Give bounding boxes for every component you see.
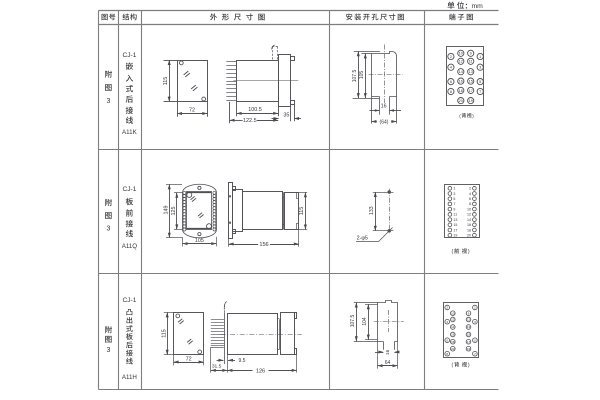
- svg-text:12: 12: [467, 213, 471, 217]
- svg-text:16: 16: [467, 223, 471, 227]
- svg-text:149: 149: [163, 206, 169, 215]
- svg-text:122.5: 122.5: [243, 118, 257, 124]
- svg-text:9: 9: [453, 207, 455, 211]
- svg-text:6: 6: [450, 80, 452, 84]
- svg-text:105: 105: [359, 71, 365, 80]
- svg-text:16: 16: [451, 333, 455, 337]
- svg-text:9: 9: [470, 52, 472, 56]
- svg-text:115: 115: [161, 329, 167, 338]
- svg-text:16: 16: [459, 79, 463, 83]
- svg-text:8: 8: [469, 202, 471, 206]
- svg-text:): ): [468, 362, 470, 368]
- svg-text:19: 19: [469, 99, 473, 103]
- svg-text:72: 72: [186, 356, 192, 362]
- svg-text:10: 10: [459, 52, 463, 56]
- svg-text:A11Q: A11Q: [122, 243, 138, 250]
- svg-text:8: 8: [450, 90, 452, 94]
- svg-text:6: 6: [469, 197, 471, 201]
- svg-text:31.5: 31.5: [212, 364, 222, 370]
- svg-text:5: 5: [474, 338, 476, 342]
- svg-text:11: 11: [469, 60, 473, 64]
- svg-text:11: 11: [467, 318, 470, 322]
- svg-text:): ): [468, 249, 470, 255]
- svg-text:CJ-1: CJ-1: [122, 52, 136, 59]
- svg-text:18: 18: [451, 340, 455, 344]
- svg-text:35: 35: [283, 112, 289, 118]
- svg-text:3: 3: [479, 66, 481, 70]
- svg-text:11: 11: [453, 213, 457, 217]
- svg-text:A11K: A11K: [122, 129, 138, 136]
- svg-text:3: 3: [106, 98, 110, 105]
- svg-text:7: 7: [453, 202, 455, 206]
- svg-text:12: 12: [451, 318, 455, 322]
- svg-text:15: 15: [453, 223, 457, 227]
- svg-text:8: 8: [446, 352, 448, 356]
- svg-text:17: 17: [453, 228, 457, 232]
- svg-text:A11H: A11H: [122, 374, 137, 381]
- svg-text:3: 3: [453, 192, 455, 196]
- svg-text:1: 1: [453, 187, 455, 191]
- svg-text:4: 4: [450, 66, 452, 70]
- svg-text:13: 13: [469, 70, 473, 74]
- svg-text:10: 10: [467, 207, 471, 211]
- svg-text:9: 9: [468, 311, 470, 315]
- svg-text:(: (: [452, 362, 454, 368]
- svg-text:13: 13: [467, 325, 471, 329]
- svg-text:CJ-1: CJ-1: [122, 297, 136, 304]
- svg-text:7: 7: [474, 352, 476, 356]
- svg-text:6: 6: [446, 338, 448, 342]
- svg-text:(: (: [459, 113, 461, 119]
- svg-text:14: 14: [459, 70, 463, 74]
- svg-text:15: 15: [467, 333, 471, 337]
- svg-text:17: 17: [469, 89, 473, 93]
- svg-text:2: 2: [450, 55, 452, 59]
- svg-text:(64): (64): [380, 119, 389, 125]
- svg-text:126: 126: [256, 368, 265, 374]
- svg-text:20: 20: [459, 99, 463, 103]
- svg-text:19: 19: [467, 347, 471, 351]
- svg-text:107.5: 107.5: [352, 70, 358, 83]
- svg-text:16: 16: [381, 104, 387, 110]
- svg-text:20: 20: [467, 233, 471, 237]
- svg-text:3: 3: [474, 320, 476, 324]
- svg-text:19: 19: [453, 233, 457, 237]
- svg-text:CJ-1: CJ-1: [122, 186, 136, 193]
- svg-text:14: 14: [467, 218, 471, 222]
- svg-text:18: 18: [459, 89, 463, 93]
- svg-text:115: 115: [299, 207, 305, 216]
- svg-text:5: 5: [479, 80, 481, 84]
- svg-text:3: 3: [106, 347, 110, 354]
- svg-text:5: 5: [453, 197, 455, 201]
- svg-text:9.5: 9.5: [239, 358, 246, 364]
- svg-text:1: 1: [479, 55, 481, 59]
- svg-text:105: 105: [195, 238, 204, 244]
- svg-text:20: 20: [451, 347, 455, 351]
- svg-text:mm: mm: [472, 3, 484, 10]
- svg-text:17: 17: [467, 340, 471, 344]
- svg-text:18: 18: [467, 228, 471, 232]
- svg-text:133: 133: [369, 206, 375, 215]
- svg-text:125: 125: [171, 207, 177, 216]
- svg-text:13: 13: [453, 218, 457, 222]
- svg-text:(: (: [452, 249, 454, 255]
- svg-text:7: 7: [479, 90, 481, 94]
- svg-text:156: 156: [259, 242, 268, 248]
- svg-text:15: 15: [469, 79, 473, 83]
- svg-text:2-φ5: 2-φ5: [357, 235, 368, 241]
- svg-text:4: 4: [446, 320, 448, 324]
- svg-text:10: 10: [451, 311, 455, 315]
- svg-text:): ): [472, 113, 474, 119]
- svg-text:72: 72: [189, 108, 195, 114]
- svg-text:2: 2: [469, 187, 471, 191]
- svg-text:100.5: 100.5: [248, 107, 262, 113]
- svg-text:4: 4: [469, 192, 471, 196]
- svg-text:16: 16: [385, 349, 391, 355]
- svg-text:14: 14: [451, 325, 455, 329]
- svg-text:1: 1: [474, 306, 476, 310]
- svg-text:2: 2: [446, 306, 448, 310]
- svg-text:104: 104: [362, 317, 368, 326]
- svg-text:3: 3: [106, 226, 110, 233]
- svg-text:107.5: 107.5: [350, 315, 356, 328]
- svg-text:64: 64: [385, 360, 391, 366]
- svg-text:12: 12: [459, 60, 463, 64]
- svg-text:115: 115: [163, 77, 169, 86]
